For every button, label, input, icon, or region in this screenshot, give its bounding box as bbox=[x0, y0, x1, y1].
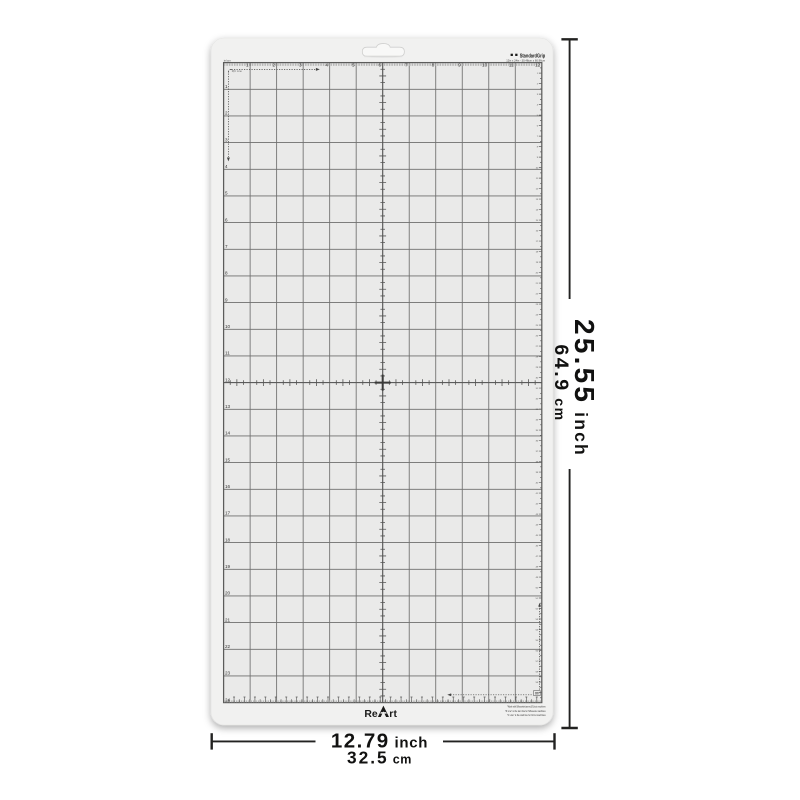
svg-text:60: 60 bbox=[535, 692, 539, 696]
svg-text:11: 11 bbox=[509, 63, 514, 68]
svg-text:12: 12 bbox=[225, 377, 231, 382]
svg-text:2: 2 bbox=[272, 63, 275, 68]
svg-text:10: 10 bbox=[482, 63, 488, 68]
svg-text:6: 6 bbox=[225, 217, 228, 222]
svg-text:13: 13 bbox=[225, 404, 231, 409]
svg-text:7: 7 bbox=[225, 244, 228, 249]
svg-text:8: 8 bbox=[432, 63, 435, 68]
svg-text:"C Line" is the start line for: "C Line" is the start line for Cricut ma… bbox=[507, 713, 546, 717]
svg-text:15: 15 bbox=[225, 457, 231, 462]
svg-text:11: 11 bbox=[225, 351, 230, 356]
svg-text:25.55 inch: 25.55 inch bbox=[569, 319, 600, 457]
svg-text:3: 3 bbox=[299, 63, 302, 68]
svg-text:24: 24 bbox=[225, 697, 231, 702]
svg-text:2: 2 bbox=[225, 111, 228, 116]
svg-text:3: 3 bbox=[225, 137, 228, 142]
svg-text:9: 9 bbox=[458, 63, 461, 68]
svg-text:6: 6 bbox=[379, 63, 382, 68]
svg-text:19: 19 bbox=[225, 564, 231, 569]
svg-text:14: 14 bbox=[225, 431, 231, 436]
svg-text:12: 12 bbox=[535, 63, 541, 68]
svg-text:16: 16 bbox=[225, 484, 231, 489]
svg-text:R|C Line: R|C Line bbox=[232, 69, 243, 73]
svg-text:12in x 24in - 30.48cm x 60.96c: 12in x 24in - 30.48cm x 60.96cm bbox=[506, 59, 545, 63]
svg-text:8: 8 bbox=[225, 271, 228, 276]
svg-text:5: 5 bbox=[352, 63, 355, 68]
svg-text:1: 1 bbox=[246, 63, 249, 68]
svg-text:7: 7 bbox=[405, 63, 408, 68]
svg-text:4: 4 bbox=[225, 164, 228, 169]
svg-text:22: 22 bbox=[225, 644, 231, 649]
svg-text:Re: Re bbox=[364, 709, 378, 720]
svg-text:1: 1 bbox=[225, 84, 228, 89]
svg-text:10: 10 bbox=[225, 324, 231, 329]
svg-text:rt: rt bbox=[389, 709, 397, 720]
svg-text:21: 21 bbox=[225, 617, 231, 622]
svg-text:64.9 cm: 64.9 cm bbox=[550, 344, 572, 421]
svg-text:17: 17 bbox=[225, 511, 231, 516]
svg-text:4: 4 bbox=[326, 63, 329, 68]
svg-text:in/cm: in/cm bbox=[224, 58, 232, 62]
svg-text:9: 9 bbox=[225, 297, 228, 302]
svg-text:23: 23 bbox=[225, 671, 231, 676]
svg-text:20: 20 bbox=[225, 591, 231, 596]
svg-text:18: 18 bbox=[225, 537, 231, 542]
svg-text:5: 5 bbox=[225, 191, 228, 196]
